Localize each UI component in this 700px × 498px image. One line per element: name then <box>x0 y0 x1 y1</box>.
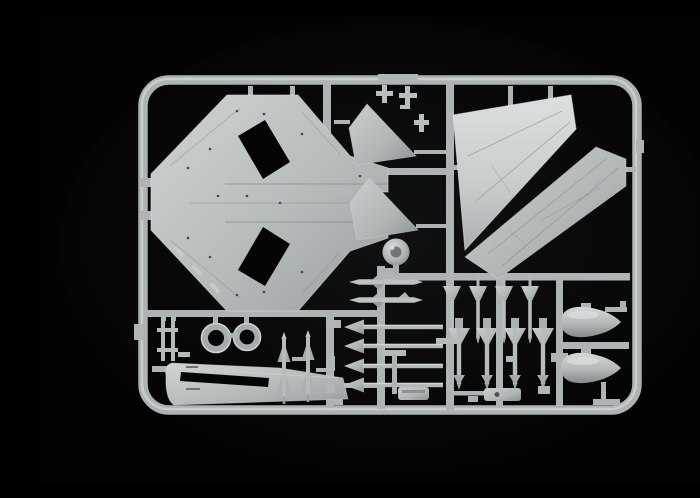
frame-tab-top <box>378 74 418 82</box>
frame-tab-right <box>636 140 644 153</box>
sprue-photo <box>40 16 700 482</box>
frame-tab-left <box>134 324 144 340</box>
wheel-tire-1 <box>202 324 231 353</box>
